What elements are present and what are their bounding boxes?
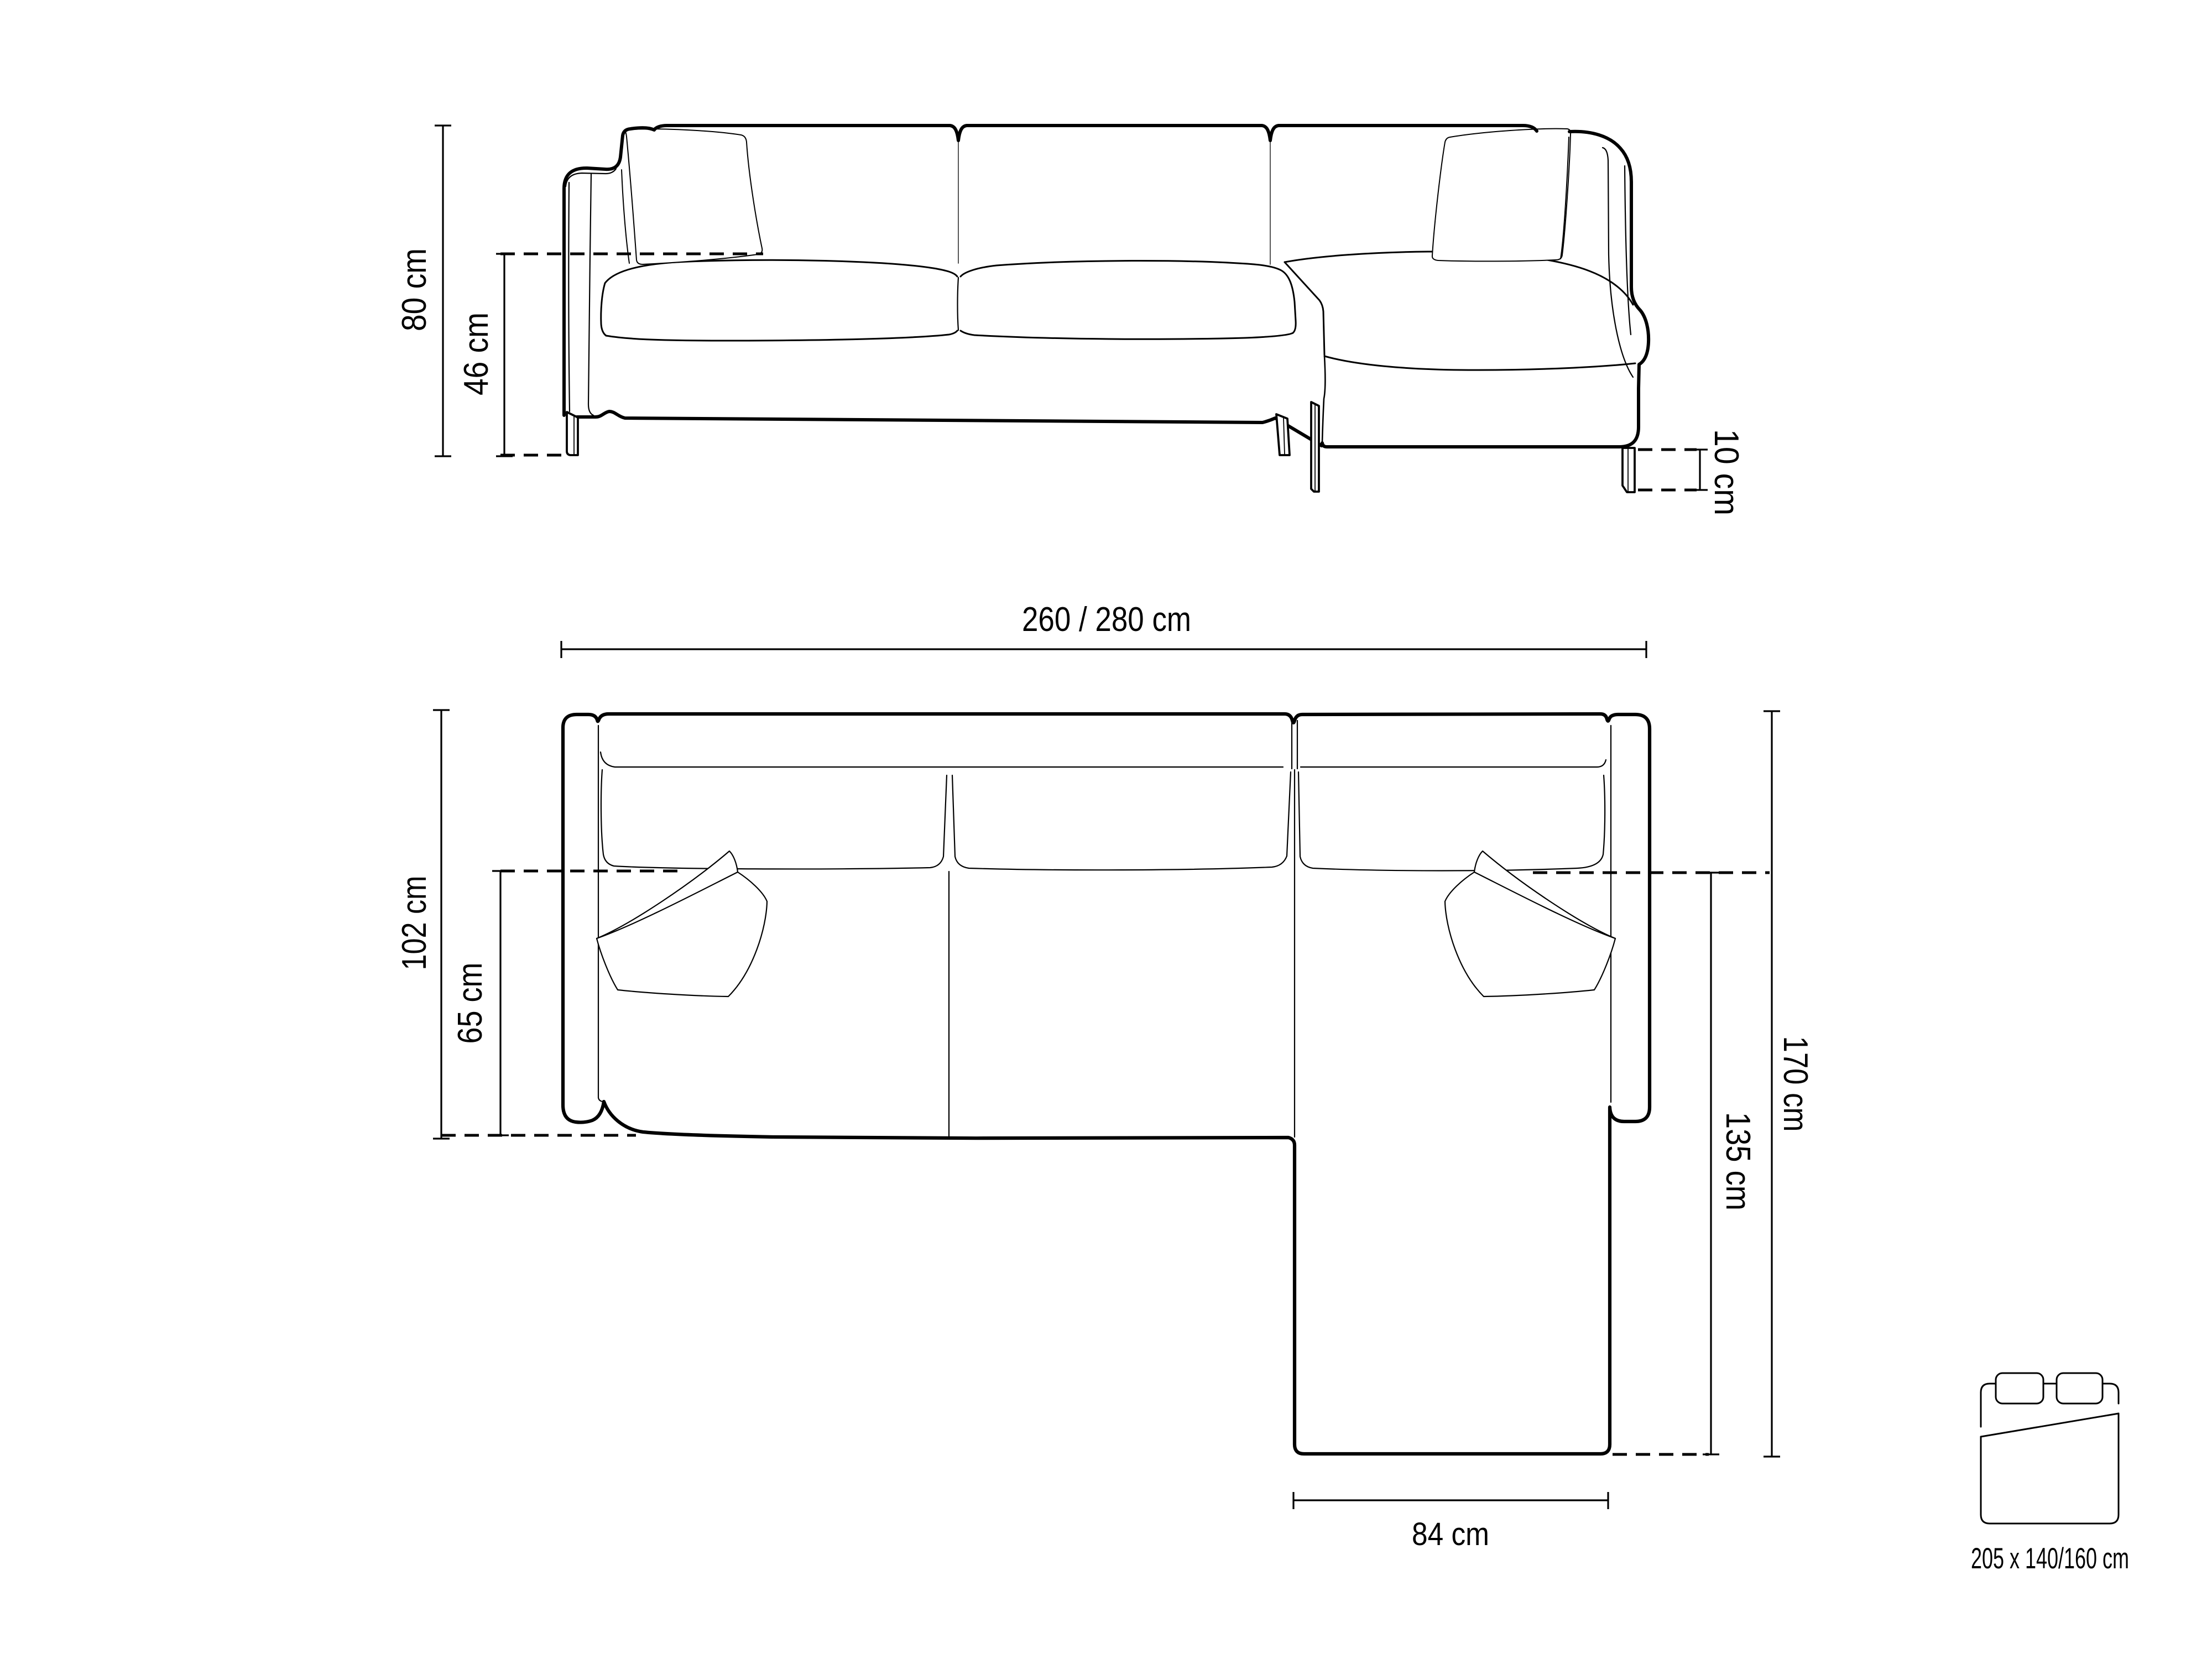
svg-text:80 cm: 80 cm — [395, 248, 434, 331]
svg-text:10 cm: 10 cm — [1707, 429, 1745, 515]
svg-text:170 cm: 170 cm — [1776, 1036, 1814, 1132]
svg-text:135 cm: 135 cm — [1719, 1112, 1757, 1211]
svg-text:46 cm: 46 cm — [457, 312, 495, 395]
svg-text:65 cm: 65 cm — [451, 963, 489, 1044]
svg-text:260 / 280 cm: 260 / 280 cm — [1022, 601, 1191, 639]
svg-text:205 x 140/160 cm: 205 x 140/160 cm — [1971, 1542, 2129, 1575]
svg-text:84 cm: 84 cm — [1412, 1516, 1489, 1552]
svg-text:102 cm: 102 cm — [395, 876, 434, 971]
